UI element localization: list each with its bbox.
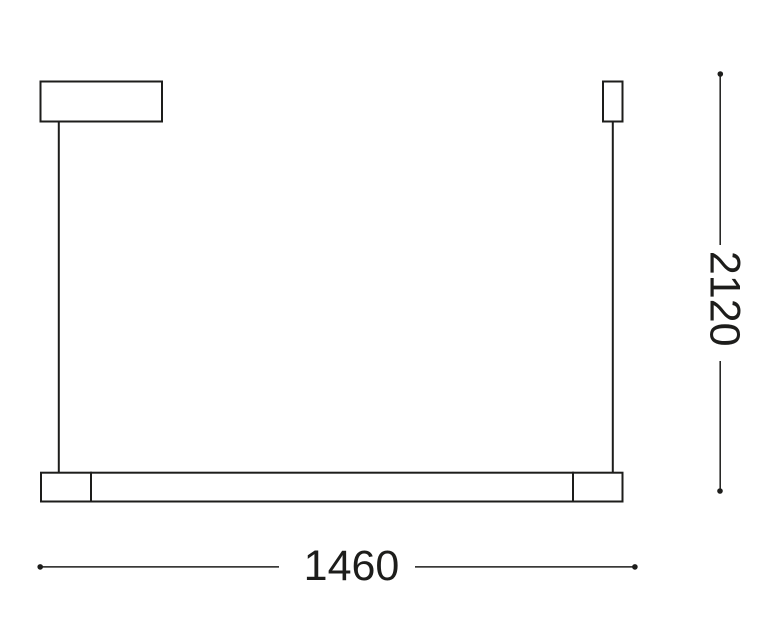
svg-text:1460: 1460 (304, 542, 400, 590)
svg-text:2120: 2120 (701, 251, 749, 347)
